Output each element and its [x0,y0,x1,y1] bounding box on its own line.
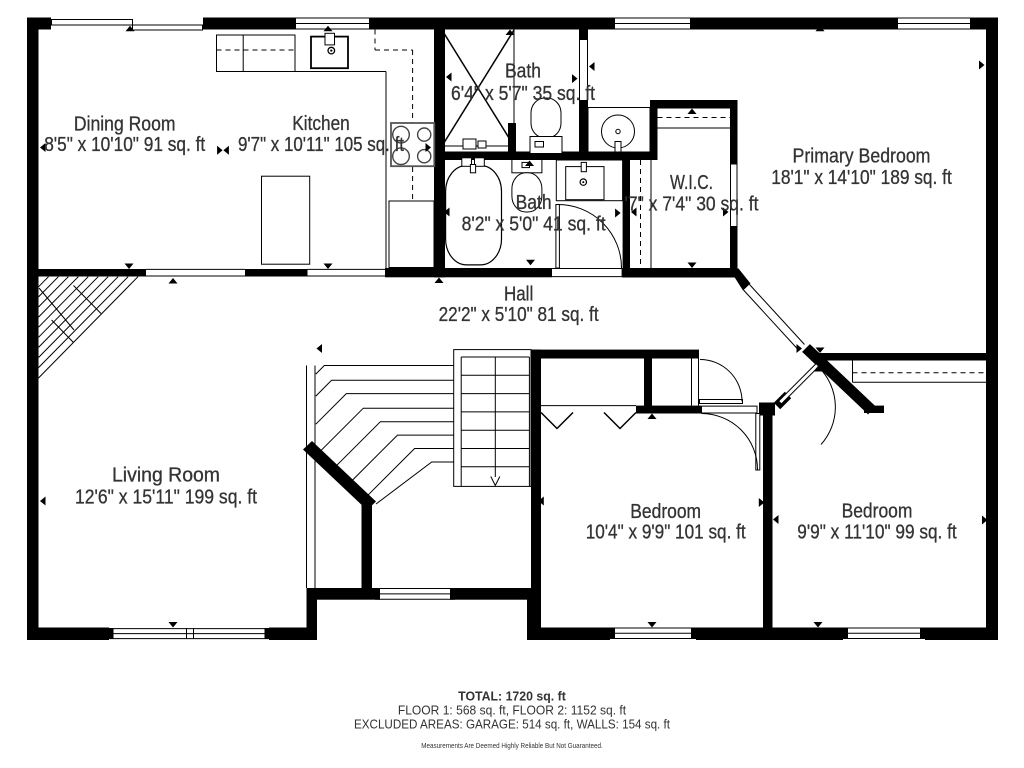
svg-text:Bedroom: Bedroom [630,501,701,523]
svg-text:9'7" x 10'11" 105 sq. ft: 9'7" x 10'11" 105 sq. ft [238,134,404,156]
svg-text:8'5" x 10'10" 91 sq. ft: 8'5" x 10'10" 91 sq. ft [44,134,205,156]
svg-text:Bedroom: Bedroom [842,500,913,522]
svg-text:8'2" x 5'0" 41 sq. ft: 8'2" x 5'0" 41 sq. ft [462,213,606,235]
svg-text:FLOOR 1: 568 sq. ft, FLOOR 2:: FLOOR 1: 568 sq. ft, FLOOR 2: 1152 sq. f… [398,703,627,718]
svg-text:W.I.C.: W.I.C. [670,172,713,194]
svg-text:Measurements Are Deemed Highly: Measurements Are Deemed Highly Reliable … [421,741,603,750]
svg-text:6'4" x 5'7" 35 sq. ft: 6'4" x 5'7" 35 sq. ft [451,83,595,105]
svg-text:12'6" x 15'11" 199 sq. ft: 12'6" x 15'11" 199 sq. ft [75,487,257,509]
svg-text:EXCLUDED AREAS: GARAGE: 514 sq: EXCLUDED AREAS: GARAGE: 514 sq. ft, WALL… [354,716,670,731]
svg-text:'7" x 7'4" 30 sq. ft: '7" x 7'4" 30 sq. ft [625,193,759,215]
svg-text:Primary Bedroom: Primary Bedroom [793,145,931,167]
svg-text:9'9" x 11'10" 99 sq. ft: 9'9" x 11'10" 99 sq. ft [797,521,957,543]
svg-text:10'4" x 9'9" 101 sq. ft: 10'4" x 9'9" 101 sq. ft [586,522,746,544]
svg-text:Living Room: Living Room [112,465,220,487]
svg-text:Hall: Hall [504,283,533,305]
svg-text:Bath: Bath [505,61,541,83]
svg-text:22'2" x 5'10" 81 sq. ft: 22'2" x 5'10" 81 sq. ft [439,304,599,326]
svg-text:Kitchen: Kitchen [292,113,350,135]
svg-text:18'1" x 14'10" 189 sq. ft: 18'1" x 14'10" 189 sq. ft [771,167,952,189]
svg-text:Bath: Bath [516,192,552,214]
svg-text:Dining Room: Dining Room [74,113,176,135]
svg-text:TOTAL: 1720 sq. ft: TOTAL: 1720 sq. ft [458,688,566,703]
